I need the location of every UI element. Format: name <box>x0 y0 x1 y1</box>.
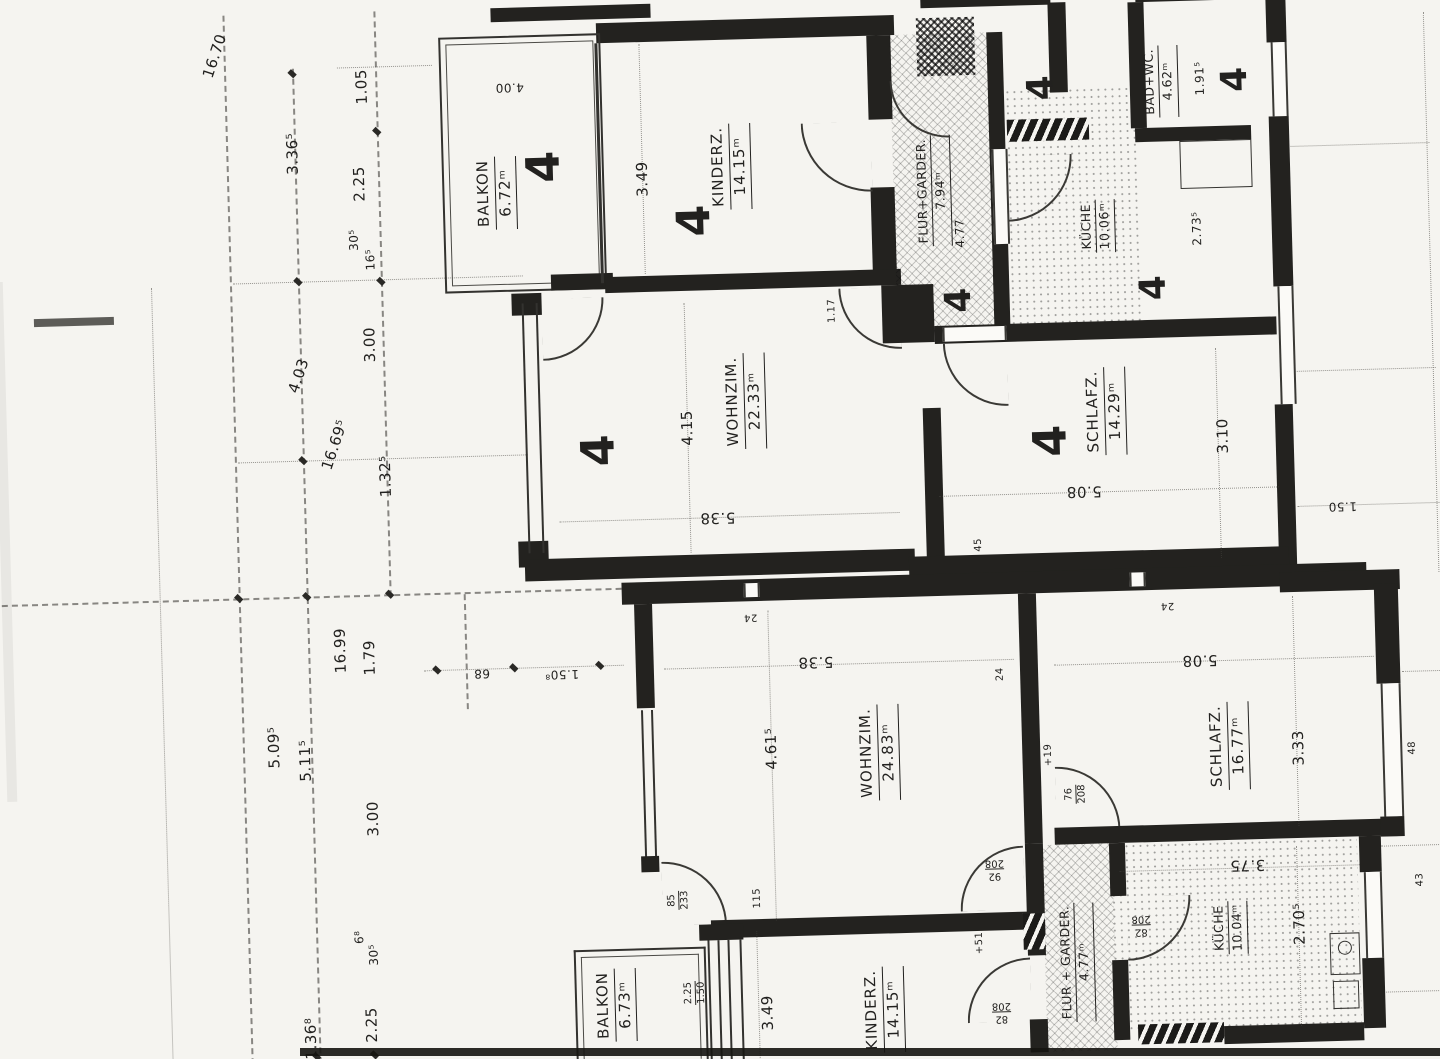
dimension-marker <box>385 590 394 599</box>
room-name: WOHNZIM. <box>855 705 879 801</box>
window <box>727 940 732 1059</box>
door-opening <box>942 326 1006 342</box>
dim-label: 4.15 <box>678 410 697 446</box>
dim-label: +51 <box>974 931 986 954</box>
dim-label: 48 <box>1407 741 1418 755</box>
room-area: 4.77ᵐ <box>1075 902 1097 1022</box>
floor-plan-scan: 16.70 3.36⁵ 1.05 2.25 30⁵ 16⁵ 3.00 4.03 … <box>0 0 1440 1059</box>
room-label-schlafz-bottom: SCHLAFZ. 16.77ᵐ <box>1205 701 1250 790</box>
dim-label: 6⁸ <box>352 930 366 944</box>
dimension-line <box>1298 502 1440 507</box>
wall <box>1112 960 1130 1040</box>
wall <box>490 4 650 22</box>
dimension-marker <box>302 592 311 601</box>
wall <box>1359 836 1382 873</box>
wall <box>1380 816 1405 837</box>
dim-label: 1.17 <box>826 299 838 324</box>
room-area: 14.15ᵐ <box>729 123 753 210</box>
dimension-line <box>1291 367 1436 372</box>
wall <box>923 408 946 573</box>
room-area: 6.72ᵐ <box>494 156 518 230</box>
dimension-chain <box>373 11 391 596</box>
door-width: 92 <box>985 869 1004 882</box>
dim-label: 4.03 <box>284 356 312 395</box>
window <box>1277 286 1296 404</box>
hatched-wall <box>1007 118 1090 142</box>
dim-label: 4.00 <box>495 80 524 95</box>
dimension-marker <box>595 661 604 670</box>
dimension-marker <box>287 69 296 78</box>
door-width: 85 <box>666 891 679 910</box>
door-height: 208 <box>985 858 1004 870</box>
door-arc <box>943 342 1009 408</box>
dimension-line <box>1423 12 1440 572</box>
unit-number: 4 <box>938 287 980 313</box>
room-area: 10.04ᵐ <box>1229 901 1249 954</box>
dim-label: 1.79 <box>360 640 379 676</box>
dimension-line <box>664 659 1014 670</box>
wall <box>641 856 659 872</box>
door-size-label: 76 208 <box>1063 784 1088 804</box>
dim-label: 2.70⁵ <box>1290 903 1309 945</box>
dim-label: 4.77 <box>952 219 967 248</box>
dim-label: 5.08 <box>1182 651 1218 670</box>
dim-label: +19 <box>1043 743 1055 766</box>
stair-hatch <box>916 17 976 77</box>
floor-plan: 16.70 3.36⁵ 1.05 2.25 30⁵ 16⁵ 3.00 4.03 … <box>0 0 1440 1059</box>
dim-label: 16⁵ <box>363 249 378 271</box>
room-name: SCHLAFZ. <box>1082 367 1106 455</box>
room-label-balkon-bottom: BALKON 6.73ᵐ <box>593 968 638 1042</box>
wall <box>1265 0 1286 43</box>
window-size-label: 2.25 1.50 <box>683 980 708 1005</box>
room-name: WOHNZIM. <box>722 354 746 450</box>
room-area: 14.15ᵐ <box>882 966 906 1053</box>
door-width: 82 <box>1132 925 1151 938</box>
dim-label: 1.50 <box>1328 499 1357 514</box>
door-arc <box>801 122 873 194</box>
room-label-kueche-top: KÜCHE 10.06ᵐ <box>1078 200 1116 254</box>
unit-number: 4 <box>1214 66 1256 92</box>
window <box>651 710 657 860</box>
door-size-label: 85 233 <box>666 890 691 910</box>
dimension-line <box>638 44 645 274</box>
dim-label: 3.36⁵ <box>283 133 302 175</box>
room-area: 6.73ᵐ <box>614 968 638 1042</box>
unit-number: 4 <box>570 434 625 468</box>
hatched-wall <box>1023 913 1046 950</box>
door-width: 76 <box>1063 785 1076 804</box>
scan-artifact <box>0 282 17 802</box>
dimension-marker <box>376 277 385 286</box>
dim-label: 3.75 <box>1230 856 1266 875</box>
dimension-chain <box>2 588 622 607</box>
room-name: BALKON <box>473 157 497 231</box>
room-label-kueche-bottom: KÜCHE 10.04ᵐ <box>1210 901 1248 955</box>
dim-label: 68 <box>474 666 491 680</box>
room-name: KINDERZ. <box>707 124 731 211</box>
door-height: 233 <box>679 890 691 909</box>
room-name: KÜCHE <box>1210 902 1230 955</box>
dim-label: 3.49 <box>633 161 652 197</box>
door-height: 208 <box>1131 914 1150 926</box>
room-area: 24.83ᵐ <box>877 704 901 800</box>
hatched-wall <box>1138 1022 1225 1044</box>
room-area: 22.33ᵐ <box>743 353 767 449</box>
wall <box>881 284 935 343</box>
dim-label: 5.11⁵ <box>296 739 315 781</box>
dimension-line <box>424 665 624 672</box>
wall <box>1109 843 1126 896</box>
unit-number: 4 <box>1020 75 1062 101</box>
window <box>717 940 722 1059</box>
door-width: 82 <box>992 1012 1011 1025</box>
dim-label: 115 <box>751 888 763 909</box>
room-label-flur-bottom: FLUR + GARDER. 4.77ᵐ <box>1056 902 1096 1022</box>
wall-gap <box>1129 572 1145 586</box>
scan-edge <box>300 1048 1440 1056</box>
door-height: 208 <box>1076 784 1088 803</box>
room-area: 14.29ᵐ <box>1104 367 1128 455</box>
dim-label: 3.00 <box>360 327 379 363</box>
wall <box>596 15 894 43</box>
dim-label: 1.91⁵ <box>1192 61 1207 95</box>
dim-label: 5.38 <box>798 653 834 672</box>
dimension-line <box>1292 596 1299 826</box>
dimension-marker <box>432 665 441 674</box>
dim-label: 45 <box>973 538 984 552</box>
room-label-schlafz-top: SCHLAFZ. 14.29ᵐ <box>1082 367 1127 456</box>
room-name: KINDERZ. <box>861 967 885 1054</box>
wall <box>634 604 655 708</box>
room-area: 4.62ᵐ <box>1159 45 1179 117</box>
dimension-line <box>939 486 1279 496</box>
dim-label: 3.10 <box>1213 418 1232 454</box>
unit-number: 4 <box>515 150 570 184</box>
unit-number: 4 <box>1133 275 1175 301</box>
dim-label: 1.05 <box>352 69 371 105</box>
dimension-line <box>1284 142 1429 147</box>
door-height: 208 <box>992 1001 1011 1013</box>
window <box>641 710 647 860</box>
dimension-line <box>1402 670 1440 672</box>
unit-number: 4 <box>1022 424 1077 458</box>
room-area: 7.94ᵐ <box>931 135 952 246</box>
wall <box>1224 1022 1364 1044</box>
room-label-kinderz-top: KINDERZ. 14.15ᵐ <box>707 123 752 210</box>
dim-label: 1.50⁸ <box>545 667 579 682</box>
dim-label: 1.32⁵ <box>376 455 395 497</box>
dimension-marker <box>298 456 307 465</box>
dim-label: 5.38 <box>700 509 736 528</box>
dim-label: 2.73⁵ <box>1189 211 1204 245</box>
window <box>1271 42 1289 116</box>
room-label-kinderz-bottom: KINDERZ. 14.15ᵐ <box>861 966 906 1053</box>
window-height: 1.50 <box>695 981 707 1004</box>
dimension-chain <box>464 594 469 709</box>
room-name: SCHLAFZ. <box>1205 702 1229 790</box>
window <box>522 303 531 553</box>
dim-label: 3.49 <box>758 995 777 1031</box>
window <box>1381 683 1405 817</box>
room-label-wohnzim-top: WOHNZIM. 22.33ᵐ <box>722 353 768 450</box>
dim-label: 16.69⁵ <box>318 417 351 472</box>
room-name: BAD+WC. <box>1140 46 1160 118</box>
wall-gap <box>743 583 759 597</box>
wall <box>1362 958 1386 1029</box>
dimension-line <box>151 288 174 1059</box>
dim-label: 30⁵ <box>366 944 381 966</box>
door-size-label: 82 208 <box>1131 913 1151 938</box>
dim-label: 3.33 <box>1289 730 1308 766</box>
dimension-marker <box>372 127 381 136</box>
door-arc <box>541 297 605 361</box>
dimension-line <box>1383 990 1440 993</box>
dimension-line <box>1381 844 1440 847</box>
room-label-bad-top: BAD+WC. 4.62ᵐ <box>1140 45 1178 118</box>
wall <box>1018 593 1043 843</box>
dim-label: 5.08 <box>1066 482 1102 501</box>
dimension-line <box>337 65 432 69</box>
unit-number: 4 <box>666 204 721 238</box>
room-area: 16.77ᵐ <box>1227 701 1251 789</box>
room-label-balkon-top: BALKON 6.72ᵐ <box>473 156 518 230</box>
dim-label: 4.61⁵ <box>762 727 781 769</box>
dim-label: 30⁵ <box>346 229 361 251</box>
dimension-chain <box>222 16 254 1059</box>
room-label-wohnzim-bottom: WOHNZIM. 24.83ᵐ <box>855 704 901 801</box>
wall <box>1374 583 1401 684</box>
dim-label: 2.25 <box>362 1007 381 1043</box>
dim-label: 2.25 <box>350 166 369 202</box>
wall <box>920 0 1050 8</box>
dim-label: 24 <box>743 612 757 623</box>
dim-label: 24 <box>994 667 1005 681</box>
dim-label: 43 <box>1414 873 1425 887</box>
window <box>739 940 744 1059</box>
room-label-flur-top: FLUR+GARDER. 7.94ᵐ <box>913 135 953 246</box>
dimension-chain <box>292 69 322 1059</box>
door-size-label: 82 208 <box>992 1000 1012 1025</box>
room-area: 10.06ᵐ <box>1096 200 1116 253</box>
dimension-marker <box>234 594 243 603</box>
dim-label: 24 <box>1160 600 1174 611</box>
dim-label: 16.99 <box>331 628 350 674</box>
dimension-marker <box>509 663 518 672</box>
room-name: BALKON <box>593 969 617 1043</box>
window <box>1364 872 1384 958</box>
wall <box>1269 116 1294 286</box>
room-name: KÜCHE <box>1078 200 1098 253</box>
window-width: 2.25 <box>683 981 696 1006</box>
wall <box>1135 0 1347 2</box>
dim-label: 3.00 <box>363 801 382 837</box>
kitchen-fixture <box>1333 980 1360 1009</box>
door-size-label: 92 208 <box>985 857 1005 882</box>
shaft <box>1179 139 1252 189</box>
wall <box>699 924 743 941</box>
dim-label: 5.09⁵ <box>264 726 283 768</box>
dimension-marker <box>293 277 302 286</box>
scan-artifact <box>34 317 114 327</box>
